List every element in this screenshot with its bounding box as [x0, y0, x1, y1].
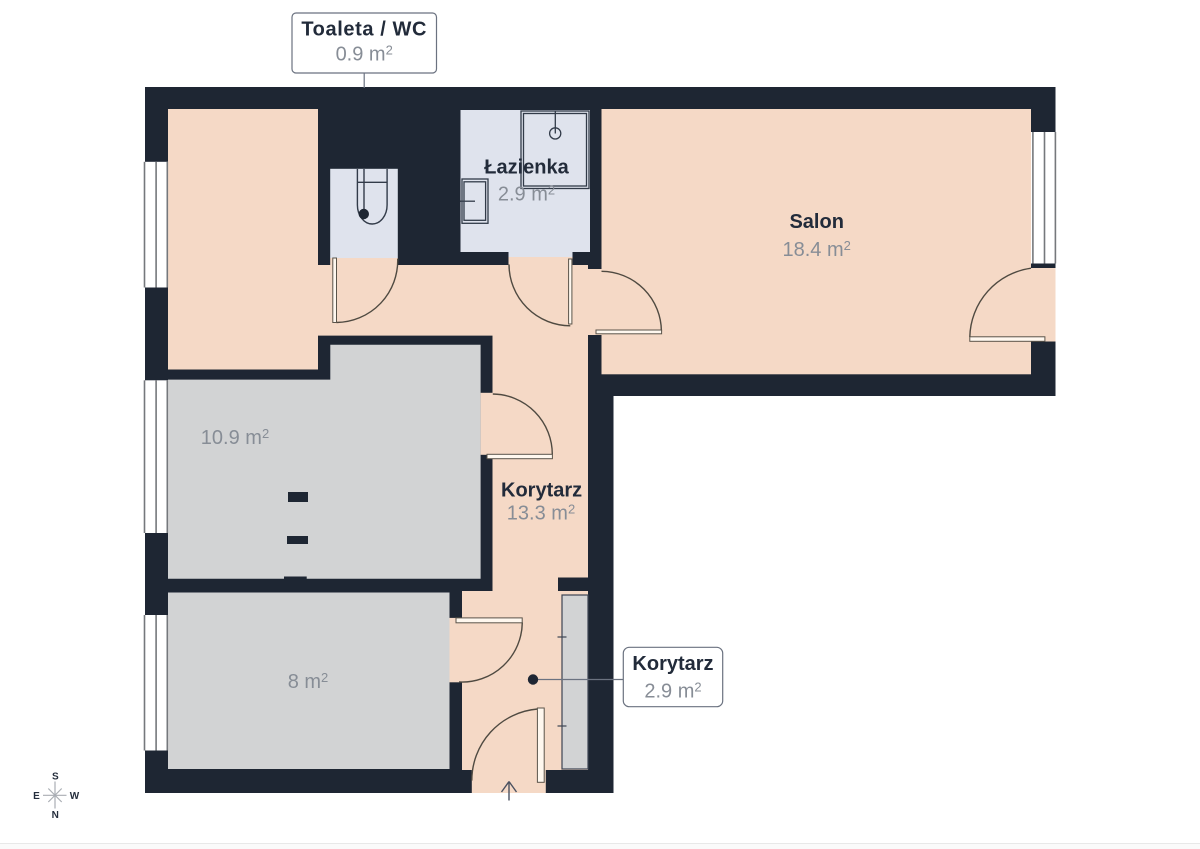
svg-text:18.4 m2: 18.4 m2 — [783, 238, 851, 261]
svg-text:Salon: Salon — [789, 211, 843, 233]
svg-text:10.9 m2: 10.9 m2 — [201, 426, 269, 449]
svg-text:W: W — [70, 791, 80, 802]
svg-text:E: E — [33, 791, 40, 802]
svg-text:S: S — [52, 772, 59, 783]
svg-text:N: N — [52, 810, 59, 821]
svg-text:Korytarz: Korytarz — [632, 653, 713, 675]
svg-text:Łazienka: Łazienka — [484, 157, 569, 179]
svg-text:Korytarz: Korytarz — [501, 480, 582, 502]
svg-text:2.9 m2: 2.9 m2 — [644, 680, 701, 703]
svg-text:2.9 m2: 2.9 m2 — [498, 183, 555, 206]
svg-text:13.3 m2: 13.3 m2 — [507, 502, 575, 525]
svg-text:Toaleta / WC: Toaleta / WC — [301, 19, 427, 41]
svg-text:0.9 m2: 0.9 m2 — [336, 43, 393, 66]
